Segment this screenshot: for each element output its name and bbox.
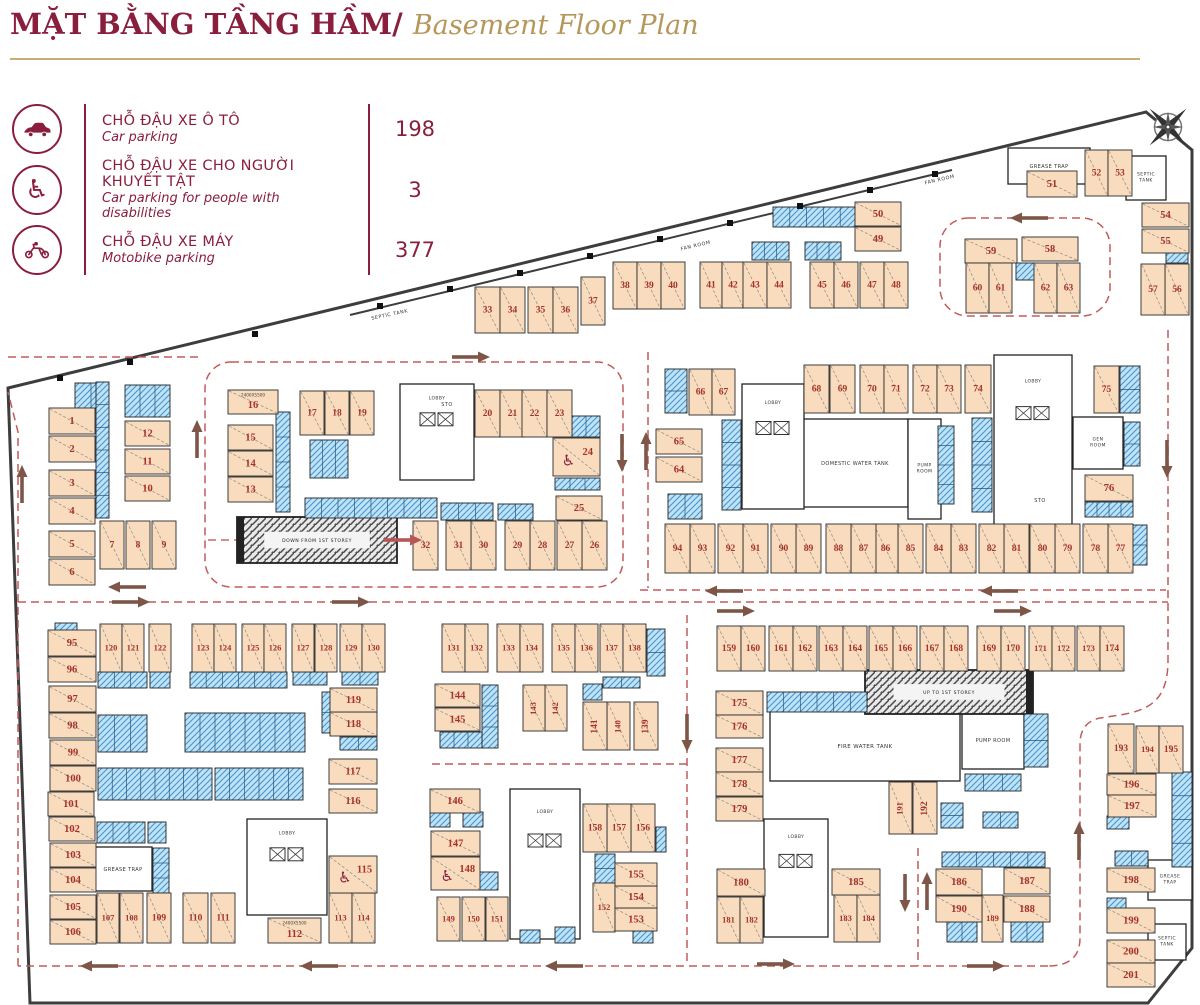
spot-number: 128 [320, 642, 333, 652]
spot-number: 102 [64, 824, 80, 835]
spot-number: 61 [996, 284, 1006, 294]
parking-spot: 61 [989, 263, 1012, 313]
spot-number: 74 [973, 385, 983, 395]
parking-spot: 143 [523, 685, 545, 731]
parking-spot: 174 [1100, 626, 1124, 671]
parking-spot: 1 [49, 408, 95, 434]
parking-spot: 156 [631, 804, 655, 852]
motorbike-zone [185, 713, 305, 752]
parking-spot: 23 [547, 390, 572, 437]
parking-spot: 144 [435, 684, 480, 707]
parking-spot: 36 [553, 287, 578, 333]
spot-number: 1 [69, 416, 74, 427]
parking-spot: 147 [431, 831, 480, 856]
ramp-label: DOWN FROM 1ST STOREY [282, 538, 352, 544]
parking-spot: 21 [500, 390, 525, 437]
parking-spot: 133 [497, 624, 520, 672]
spot-number: 20 [483, 409, 493, 419]
parking-spot: 191 [889, 782, 912, 834]
parking-spot: 154 [615, 886, 657, 908]
spot-number: 174 [1105, 644, 1120, 654]
motorbike-zone [942, 852, 1045, 867]
spot-number: 82 [987, 544, 997, 554]
parking-spot: 19 [350, 391, 374, 435]
spot-number: 73 [944, 385, 954, 395]
spot-number: 43 [750, 281, 760, 291]
parking-spot: 63 [1057, 263, 1080, 313]
spot-number: 50 [873, 209, 884, 220]
motorbike-zone [572, 416, 600, 437]
lobby-core: LOBBY [764, 819, 828, 937]
parking-spot: 140 [607, 702, 630, 750]
parking-spot: 141 [583, 702, 607, 750]
spot-number: 58 [1045, 244, 1056, 255]
lobby-core: LOBBY [742, 384, 804, 509]
spot-dimension: 2400X5500 [282, 921, 307, 926]
parking-spot: 134 [520, 624, 543, 672]
spot-number: 101 [63, 799, 79, 810]
spot-number: 90 [779, 544, 789, 554]
parking-spot: 195 [1159, 726, 1183, 773]
spot-number: 99 [68, 747, 79, 758]
parking-spot: 162 [793, 626, 817, 671]
parking-spot: 14 [228, 451, 273, 476]
spot-number: 92 [726, 544, 736, 554]
parking-spot: 39 [637, 262, 661, 309]
spot-number: 3 [69, 478, 74, 489]
parking-spot: 116 [329, 789, 377, 813]
spot-number: 105 [65, 902, 81, 913]
spot-number: 130 [367, 642, 380, 652]
lobby-core: LOBBY [510, 789, 580, 939]
motorbike-zone [665, 369, 687, 413]
spot-number: 12 [142, 428, 153, 439]
parking-spot: 197 [1108, 795, 1156, 817]
parking-spot: 107 [97, 893, 119, 943]
title-underline [10, 58, 1140, 60]
parking-spot: 40 [661, 262, 685, 309]
parking-spot: 13 [228, 477, 273, 502]
spot-number: 80 [1038, 544, 1048, 554]
spot-number: 93 [698, 544, 708, 554]
parking-spot: 94 [665, 524, 690, 573]
motorbike-zone [463, 812, 483, 827]
motorbike-zone [342, 672, 378, 685]
parking-spot: 20 [475, 390, 500, 437]
room-label: LOBBY [765, 400, 782, 406]
spot-number: 27 [565, 541, 575, 551]
parking-spot: 129 [340, 624, 362, 672]
parking-spot: 95 [48, 630, 96, 656]
spot-number: 4 [69, 506, 75, 517]
parking-spot: 130 [362, 624, 385, 672]
motorbike-zone [150, 672, 170, 688]
spot-number: 30 [479, 541, 489, 551]
legend-label-vi: CHỖ ĐẬU XE MÁY [102, 234, 352, 250]
spot-number: 104 [65, 875, 82, 886]
parking-spot: 90 [771, 524, 796, 573]
parking-spot: 160 [741, 626, 765, 671]
lobby-core: LOBBY [994, 355, 1072, 527]
motorbike-zone [1172, 772, 1192, 867]
motorbike-zone [1011, 922, 1043, 942]
motorbike-zone [310, 440, 348, 478]
parking-spot: 153 [615, 908, 657, 931]
spot-number: 41 [706, 281, 716, 291]
spot-number: 150 [467, 913, 480, 923]
spot-number: 165 [874, 644, 889, 654]
spot-number: 55 [1160, 236, 1171, 247]
motorbike-zone [668, 494, 702, 519]
spot-number: 36 [561, 306, 571, 316]
motorbike-zone [972, 418, 992, 512]
parking-spot: 35 [528, 287, 553, 333]
spot-number: 10 [142, 483, 153, 494]
parking-spot: 190 [936, 896, 982, 922]
parking-spot: 42 [722, 262, 744, 308]
parking-spot: 87 [851, 524, 876, 573]
parking-spot: 38 [613, 262, 637, 309]
spot-number: 95 [67, 638, 78, 649]
parking-spot: 30 [471, 521, 496, 570]
spot-number: 31 [454, 541, 464, 551]
parking-spot: 15 [228, 425, 273, 450]
motorbike-zone [767, 692, 867, 712]
spot-number: 135 [557, 642, 570, 652]
spot-number: 17 [307, 409, 317, 419]
spot-number: 122 [154, 642, 167, 652]
spot-number: 190 [951, 904, 967, 915]
motorbike-zone [965, 774, 1021, 791]
spot-number: 152 [598, 902, 611, 912]
parking-spot: ♿24 [553, 438, 600, 476]
parking-spot: 93 [690, 524, 715, 573]
spot-number: 166 [898, 644, 913, 654]
spot-number: 33 [483, 306, 493, 316]
parking-spot: 57 [1141, 264, 1165, 315]
spot-number: 141 [590, 719, 600, 734]
legend-label-vi: CHỖ ĐẬU XE CHO NGƯỜI KHUYẾT TẬT [102, 158, 352, 190]
parking-spot: 192 [913, 782, 937, 834]
spot-number: 66 [696, 388, 706, 398]
spot-number: 123 [197, 642, 210, 652]
spot-number: 14 [245, 458, 256, 469]
parking-spot: 45 [810, 262, 834, 308]
spot-number: 83 [959, 544, 969, 554]
spot-number: 54 [1160, 210, 1171, 221]
parking-spot: 91 [743, 524, 768, 573]
parking-spot: 22 [522, 390, 547, 437]
parking-spot: 159 [717, 626, 741, 671]
parking-spot: 110 [183, 893, 208, 943]
spot-number: 167 [925, 644, 940, 654]
parking-spot: 10 [125, 476, 170, 501]
spot-number: 71 [891, 385, 901, 395]
post [252, 331, 258, 337]
spot-number: 106 [65, 927, 81, 938]
spot-number: 134 [525, 642, 539, 652]
spot-number: 127 [297, 642, 311, 652]
spot-number: 153 [628, 914, 644, 925]
spot-number: 172 [1057, 643, 1070, 653]
parking-spot: 132 [465, 624, 488, 672]
spot-number: 142 [550, 702, 560, 715]
parking-spot: 178 [716, 772, 763, 796]
legend-count-disabled: 3 [384, 178, 446, 202]
parking-spot: 76 [1085, 475, 1133, 501]
room-label: LOBBY [1025, 379, 1042, 385]
parking-spot: 43 [743, 262, 767, 308]
spot-number: 18 [332, 409, 342, 419]
parking-spot: 185 [832, 869, 880, 895]
legend-label-en: Car parking [102, 130, 352, 145]
parking-spot: 71 [884, 365, 908, 413]
legend-row-disabled: ♿ CHỖ ĐẬU XE CHO NGƯỜI KHUYẾT TẬT Car pa… [12, 158, 450, 221]
spot-number: 22 [530, 409, 540, 419]
parking-spot: 8 [126, 521, 150, 569]
parking-spot: 117 [329, 759, 377, 784]
spot-number: 6 [69, 567, 74, 578]
spot-number: 84 [934, 544, 944, 554]
motorbike-zone [947, 922, 977, 942]
parking-spot: 65 [656, 429, 702, 454]
parking-spot: 120 [100, 624, 122, 672]
spot-number: 100 [65, 773, 81, 784]
room: FIRE WATER TANK [770, 711, 960, 781]
spot-number: 178 [732, 779, 748, 790]
spot-number: 72 [920, 385, 930, 395]
spot-number: 146 [447, 796, 463, 807]
motorbike-zone [305, 498, 437, 518]
parking-spot: 17 [300, 391, 324, 435]
motorbike-zone [773, 207, 857, 227]
motorbike-zone [1107, 816, 1129, 829]
parking-spot: 41 [700, 262, 722, 308]
spot-number: 5 [69, 539, 74, 550]
spot-number: 160 [746, 644, 761, 654]
spot-number: 198 [1123, 875, 1139, 886]
spot-number: 44 [774, 281, 784, 291]
spot-number: 94 [673, 544, 683, 554]
spot-number: 111 [216, 914, 229, 924]
spot-number: 173 [1082, 643, 1095, 653]
motorbike-icon [12, 225, 62, 275]
parking-spot: 82 [979, 524, 1004, 573]
spot-number: 103 [65, 850, 81, 861]
spot-number: 170 [1006, 644, 1021, 654]
spot-number: 21 [508, 409, 518, 419]
motorbike-zone [520, 930, 540, 943]
motorbike-zone [722, 420, 741, 510]
parking-spot: 171 [1029, 626, 1052, 671]
car-icon [12, 104, 62, 154]
parking-spot: 124 [214, 624, 236, 672]
spot-number: 193 [1114, 744, 1129, 754]
spot-number: 132 [470, 642, 483, 652]
room-label: LOBBY [788, 834, 805, 840]
parking-spot: 9 [152, 521, 176, 569]
motorbike-zone [595, 854, 615, 883]
parking-spot: 81 [1004, 524, 1029, 573]
room: GREASE TRAP [94, 847, 152, 891]
spot-number: 13 [245, 484, 256, 495]
spot-number: 78 [1091, 544, 1101, 554]
spot-number: 114 [357, 912, 370, 922]
spot-number: 201 [1123, 970, 1139, 981]
ramp: DOWN FROM 1ST STOREY [237, 517, 397, 563]
parking-spot: 2 [49, 436, 95, 462]
parking-spot: 75 [1094, 366, 1119, 413]
parking-spot: 125 [242, 624, 264, 672]
parking-spot: 163 [819, 626, 843, 671]
parking-spot: 177 [716, 748, 763, 772]
post [727, 220, 733, 226]
parking-spot: 188 [1004, 896, 1050, 922]
motorbike-zone [555, 927, 575, 943]
spot-number: 187 [1019, 876, 1035, 887]
spot-number: 85 [906, 544, 916, 554]
spot-number: 28 [538, 541, 548, 551]
parking-spot: 136 [575, 624, 598, 672]
parking-spot: 172 [1052, 626, 1075, 671]
motorbike-zone [190, 672, 287, 688]
spot-number: 163 [824, 644, 839, 654]
legend-row-motorbike: CHỖ ĐẬU XE MÁY Motobike parking 377 [12, 221, 450, 279]
spot-number: 147 [448, 838, 464, 849]
spot-number: 24 [583, 447, 594, 458]
motorbike-zone [97, 822, 145, 843]
parking-spot: 70 [860, 365, 884, 413]
spot-number: 23 [555, 409, 565, 419]
parking-spot: 113 [329, 893, 352, 943]
spot-number: 168 [949, 644, 964, 654]
spot-number: 175 [732, 698, 748, 709]
room: GENROOM [1073, 417, 1123, 469]
parking-spot: 103 [50, 843, 96, 867]
spot-number: 140 [612, 720, 622, 733]
parking-spot: 126 [264, 624, 286, 672]
motorbike-zone [1024, 714, 1048, 767]
spot-number: 34 [508, 306, 518, 316]
spot-number: 159 [722, 644, 737, 654]
parking-spot: 199 [1107, 908, 1155, 933]
parking-spot: 161 [769, 626, 793, 671]
spot-number: 139 [641, 719, 651, 734]
post [797, 203, 803, 209]
spot-number: 199 [1123, 915, 1139, 926]
parking-spot: 49 [855, 227, 901, 251]
parking-spot: 52 [1085, 150, 1108, 196]
parking-spot: 167 [920, 626, 944, 671]
parking-spot: 106 [50, 920, 96, 944]
parking-spot: 83 [951, 524, 976, 573]
room-label: GREASE TRAP [1029, 164, 1068, 170]
spot-number: 161 [774, 644, 789, 654]
parking-spot: 183 [834, 895, 857, 942]
parking-spot: 105 [50, 895, 96, 919]
parking-spot: 187 [1004, 868, 1050, 894]
parking-spot: 98 [49, 713, 96, 738]
parking-spot: 109 [147, 893, 171, 943]
parking-spot: 73 [937, 365, 961, 413]
spot-number: 38 [620, 281, 630, 291]
parking-spot: 182 [740, 897, 763, 943]
parking-spot: 131 [442, 624, 465, 672]
motorbike-zone [498, 504, 533, 520]
motorbike-zone [440, 732, 482, 748]
legend-count-car: 198 [384, 117, 446, 141]
spot-number: 48 [891, 281, 901, 291]
motorbike-zone [153, 848, 169, 893]
parking-spot: 62 [1034, 263, 1057, 313]
spot-number: 143 [528, 702, 538, 715]
parking-spot: 176 [716, 715, 763, 738]
parking-spot: 69 [830, 365, 855, 413]
room-label: PUMP ROOM [976, 738, 1011, 744]
spot-number: 25 [574, 503, 585, 514]
parking-spot: 196 [1107, 774, 1156, 795]
spot-number: 19 [357, 409, 367, 419]
parking-spot: 51 [1027, 171, 1077, 197]
lobby-core: LOBBY [247, 819, 327, 915]
room-label: LOBBY [429, 395, 446, 401]
spot-number: 179 [732, 804, 748, 815]
spot-number: 56 [1172, 285, 1182, 295]
header: MẶT BẰNG TẦNG HẦM/ Basement Floor Plan [10, 6, 699, 43]
spot-number: 113 [334, 912, 346, 922]
parking-spot: ♿115 [329, 856, 377, 893]
parking-spot: 168 [944, 626, 968, 671]
parking-spot: 151 [486, 897, 508, 941]
legend-label-en: Car parking for people with disabilities [102, 191, 352, 221]
legend-label-vi: CHỖ ĐẬU XE Ô TÔ [102, 113, 352, 129]
spot-number: 189 [986, 913, 999, 923]
parking-spot: 6 [49, 559, 95, 585]
parking-spot: 27 [557, 521, 582, 570]
spot-number: 15 [245, 432, 256, 443]
spot-number: 200 [1123, 946, 1139, 957]
spot-number: 70 [867, 385, 877, 395]
spot-number: 185 [848, 877, 864, 888]
parking-spot: 34 [500, 287, 525, 333]
spot-number: 148 [459, 864, 475, 875]
parking-spot: ♿148 [431, 857, 480, 890]
spot-number: 117 [345, 766, 360, 777]
motorbike-zone [805, 242, 841, 260]
motorbike-zone [276, 412, 290, 512]
parking-spot: 96 [48, 657, 96, 682]
parking-spot: 145 [435, 708, 480, 731]
spot-dimension: 2400X5500 [241, 393, 266, 398]
room: PUMP ROOM [962, 711, 1024, 769]
parking-spot: 33 [475, 287, 500, 333]
spot-number: 119 [346, 695, 361, 706]
wheelchair-icon: ♿ [562, 451, 575, 469]
post [867, 187, 873, 193]
spot-number: 107 [102, 912, 116, 922]
motorbike-zone [478, 872, 498, 890]
parking-spot: 54 [1142, 203, 1189, 227]
motorbike-zone [340, 737, 377, 750]
parking-spot: 184 [857, 895, 880, 942]
spot-number: 62 [1041, 284, 1051, 294]
parking-spot: 3 [49, 470, 95, 496]
parking-spot: 32 [413, 521, 438, 570]
motorbike-zone [98, 715, 147, 752]
parking-spot: 84 [926, 524, 951, 573]
legend: CHỖ ĐẬU XE Ô TÔ Car parking 198 ♿ CHỖ ĐẬ… [12, 100, 450, 279]
post [932, 171, 938, 177]
